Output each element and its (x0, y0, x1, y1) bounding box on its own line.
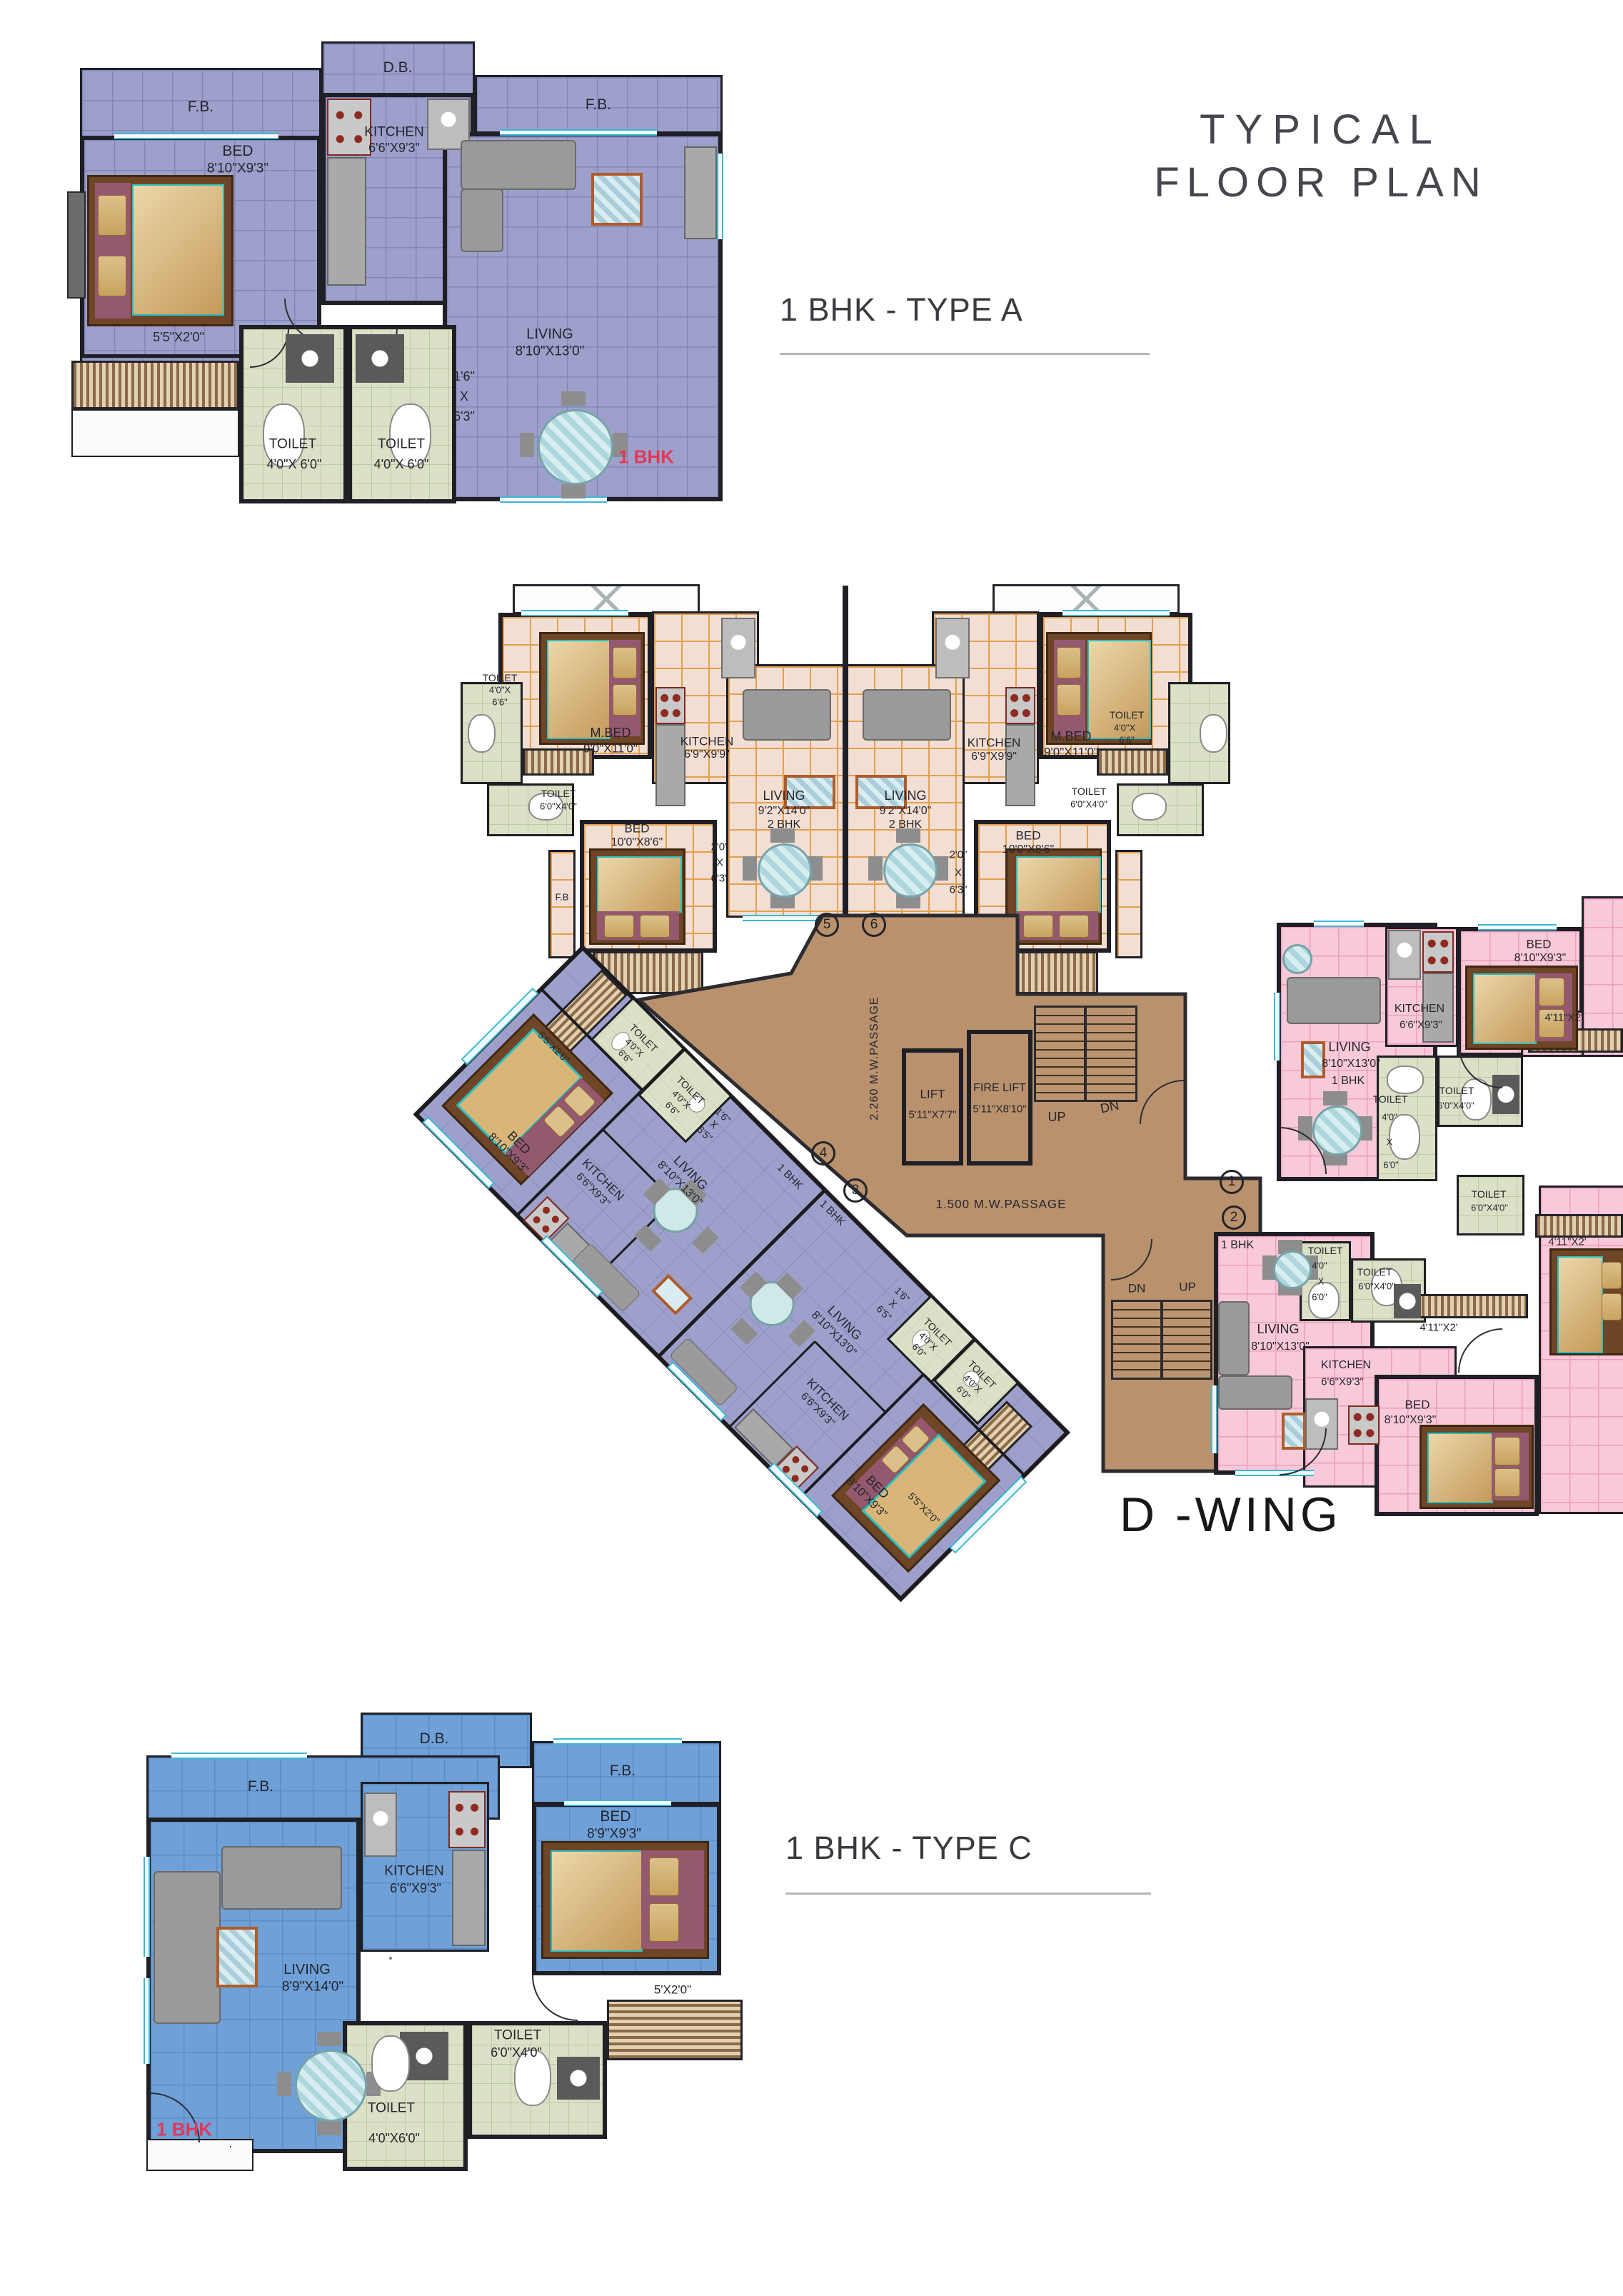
type-a-balcony-louver (71, 361, 239, 409)
bhk2r-mbed-furniture (1046, 632, 1152, 745)
bhk2l-stove (655, 687, 685, 724)
bhk2l-balc-dim2: 6'3" (711, 873, 729, 886)
type-a-wardrobe-dim: 5'5"X2'0" (153, 330, 204, 344)
bhk2l-toilet1-dim1: 4'0"X (489, 686, 511, 696)
type-a-living-top-window (500, 129, 657, 136)
bhk2r-dining-table (883, 843, 938, 898)
type-a-toilet2-label: TOILET (378, 436, 425, 451)
core-dn2-label: DN (1128, 1281, 1146, 1295)
type-c-stove (448, 1791, 486, 1848)
type-a-kitchen-counter (327, 157, 366, 286)
bhk2r-sofa (863, 689, 951, 741)
type-a-passage-dim2: 6'3" (453, 409, 475, 423)
bhk2r-mbed-window (1062, 610, 1170, 616)
pinkb-toilet1-dim2: 6'0" (1312, 1293, 1327, 1303)
pinkb-bed-pillow (1494, 1437, 1520, 1465)
type-c-fb-right-window (553, 1738, 682, 1745)
type-a-tv-unit (684, 146, 717, 239)
bhk2r-kitchen-dim: 6'9"X9'9" (971, 751, 1017, 763)
pinkb-balcony-louver (1407, 1294, 1528, 1318)
pinkb-stove (1348, 1405, 1380, 1445)
pinkb-left-window (1211, 1385, 1217, 1453)
pinkp-bed-mattress (1557, 1256, 1603, 1353)
type-a-bed-furniture (87, 175, 233, 326)
type-c-bed-mattress (551, 1850, 643, 1952)
type-a-bed-window (114, 133, 278, 139)
bhk2-divider-wall (843, 586, 848, 918)
pinkt-balc-dim: 4'11"X2' (1544, 1013, 1582, 1025)
core-circle-1-num: 1 (1228, 1174, 1236, 1190)
pinkp-balc-dim: 4'11"X2' (1548, 1237, 1586, 1249)
type-c-wardrobe-dim: 5'X2'0" (654, 1982, 691, 1996)
bhk2l-living-label: LIVING (763, 788, 805, 803)
type-c-underline (785, 1893, 1151, 1895)
type-a-kitchen-label: KITCHEN (364, 124, 423, 139)
wing-rotated-group: 5'5"X2'0" TOILET 4'0"X 6'6" TOILET 4'0"X… (411, 943, 1072, 1604)
type-a-dining-set (520, 391, 627, 498)
section-label-type-a: 1 BHK - TYPE A (780, 291, 1023, 329)
bhk2l-balc-dim1: 2'0" (711, 842, 729, 854)
bhk2r-living-dim: 9'2"X14'0" (880, 805, 932, 818)
type-a-bed-label: BED (222, 143, 253, 160)
type-a-mirror (591, 173, 643, 226)
type-a-toilet1-label: TOILET (269, 436, 316, 451)
type-a-db-label: D.B. (383, 59, 413, 76)
pinkt-living-label: LIVING (1328, 1040, 1370, 1054)
type-c-bed-furniture (541, 1841, 709, 1959)
bhk2r-bed-dim: 10'0"X8'6" (1003, 843, 1055, 856)
floor-plan-canvas: F.B. D.B. F.B. BED 8'10"X9'3" KITCHEN 6'… (0, 0, 1623, 2296)
pinkt-bed-mattress (1473, 973, 1537, 1044)
pinkt-bed-furniture (1465, 966, 1578, 1050)
core-lower-stairs-divider (1160, 1300, 1163, 1380)
bhk2l-sofa (743, 689, 831, 741)
title-line1: TYPICAL (1135, 106, 1507, 154)
type-a-bed-mattress (132, 184, 224, 316)
pinkt-bed-window (1478, 924, 1557, 931)
bhk2l-mbed-label: M.BED (590, 726, 630, 740)
type-a-fb-left-label: F.B. (188, 99, 213, 116)
type-c-dining-table (295, 2050, 367, 2122)
core-circle-2: 2 (1222, 1205, 1246, 1230)
bhk2l-dining-table (758, 843, 812, 898)
pinkt-toilet2-dim: 6'0"X4'0" (1437, 1101, 1474, 1112)
bhk2r-toilet2-dim: 6'0"X4'0" (1070, 800, 1107, 811)
pinkp-toilet-label: TOILET (1472, 1189, 1507, 1200)
type-a-sofa-single (461, 189, 503, 252)
bhk2r-sink-unit (935, 618, 970, 678)
core-up2-label: UP (1179, 1280, 1196, 1293)
bhk2r-toilet1-label: TOILET (1110, 710, 1145, 721)
bhk2r-kitchen-label: KITCHEN (968, 736, 1021, 749)
pinkt-sink-unit (1388, 930, 1421, 980)
type-a-bed-pillow (98, 195, 126, 236)
bhk2r-bed-label: BED (1016, 828, 1041, 842)
pinkb-kitchen-label: KITCHEN (1321, 1359, 1371, 1372)
pinkt-bed-dim: 8'10"X9'3" (1514, 952, 1567, 965)
pinkb-living-dim: 8'10"X13'0" (1251, 1340, 1310, 1353)
pinkt-dining-table (1312, 1106, 1362, 1155)
type-c-kitchen-dim: 6'6"X9'3" (390, 1881, 441, 1895)
bhk2r-toilet2-wc (1132, 793, 1167, 821)
type-c-toilet2-dim: 6'0"X4'0" (491, 2045, 542, 2060)
pinkt-toilet1-x: X (1387, 1138, 1393, 1148)
type-a-bed-dim: 8'10"X9'3" (207, 161, 268, 176)
type-c-balcony-louver (607, 2000, 743, 2060)
pinkb-sofa-vertical (1218, 1301, 1250, 1375)
type-c-toilet1-wc (371, 2035, 410, 2092)
bhk2l-toilet1-label: TOILET (483, 673, 518, 684)
bhk2r-balc-x: X (955, 868, 962, 880)
type-c-toilet1-dim: 4'0"X6'0" (368, 2131, 420, 2145)
pinkb-bed-pillow (1494, 1468, 1520, 1497)
type-a-passage-dim1: 1'6" (453, 369, 475, 383)
bhk2r-balc-dim2: 6'3" (950, 885, 968, 897)
type-c-balcony-floor (146, 2139, 253, 2171)
type-c-left-window1 (144, 1857, 150, 1957)
type-c-toilet2-label: TOILET (494, 2027, 541, 2042)
pinkt-living-type: 1 BHK (1332, 1075, 1365, 1088)
type-c-sink-unit (364, 1793, 397, 1857)
wing-caption: D -WING (1120, 1487, 1342, 1543)
type-a-balcony-floor (71, 409, 239, 457)
type-a-toilet1-dim: 4'0"X 6'0" (267, 457, 322, 471)
bhk2l-bed-dim: 10'0"X8'6" (611, 836, 663, 849)
bhk2l-kitchen-label: KITCHEN (680, 734, 734, 748)
bhk2r-toilet1-dim1: 4'0"X (1114, 723, 1135, 734)
pinkb-toilet2-basin (1394, 1284, 1421, 1318)
bhk2l-living-dim: 9'2"X14'0" (758, 805, 810, 818)
pinkb-bed-door-arc (1458, 1328, 1502, 1373)
bhk2r-balc-dim1: 2'0" (950, 850, 968, 862)
type-a-toilet1-basin (286, 334, 334, 383)
type-a-dining-table (538, 409, 613, 485)
bhk2r-bed-mattress (1016, 856, 1101, 913)
type-c-fb-window (171, 1753, 307, 1759)
type-c-bed-door-arc (532, 1975, 578, 2021)
type-a-passage-x: X (460, 389, 468, 403)
type-c-bed-dim: 8'9"X9'3" (587, 1826, 641, 1841)
bhk2l-kitchen-dim: 6'9"X9'9" (684, 748, 730, 761)
type-c-bed-label: BED (600, 1808, 630, 1825)
type-c-kitchen-label: KITCHEN (384, 1863, 443, 1878)
bhk2r-stove (1005, 687, 1035, 724)
type-c-living-dim: 8'9"X14'0" (282, 1979, 343, 1994)
bhk2r-dining-set (868, 828, 948, 908)
type-a-toilet2-dim: 4'0"X 6'0" (374, 457, 429, 471)
pinkb-living-label: LIVING (1257, 1322, 1299, 1336)
section-label-type-c: 1 BHK - TYPE C (785, 1830, 1032, 1867)
bhk2r-mbed-label: M.BED (1050, 729, 1091, 743)
pinkp-bed-pillow (1602, 1262, 1622, 1289)
diagonal-wing: 5'5"X2'0" TOILET 4'0"X 6'6" TOILET 4'0"X… (386, 907, 1100, 1664)
pinkb-bed-label: BED (1405, 1398, 1430, 1411)
pinkt-toilet1-dim2: 6'0" (1383, 1160, 1399, 1171)
pinkt-toilet1-basin (1387, 1066, 1424, 1094)
pinkt-side-table (1282, 944, 1312, 974)
bhk2l-mbed-dim: 9'0"X11'0" (583, 741, 638, 755)
pinkb-sofa-horizontal (1218, 1375, 1292, 1410)
bhk2l-dining-set (743, 828, 823, 908)
type-c-toilet2-basin (557, 2057, 600, 2100)
pinkb-toilet2-label: TOILET (1357, 1267, 1392, 1278)
type-c-bed-window (564, 1800, 671, 1806)
pinkt-bed-pillow (1539, 978, 1564, 1006)
pinkb-bed-dim: 8'10"X9'3" (1385, 1414, 1437, 1427)
type-c-kitchen-counter (452, 1850, 486, 1946)
type-a-living-label: LIVING (526, 326, 573, 342)
pinkt-toilet2-label: TOILET (1439, 1086, 1474, 1097)
bhk2l-sink-unit (721, 618, 755, 678)
bhk2l-toilet2-label: TOILET (541, 788, 576, 800)
bhk2r-toilet2-label: TOILET (1072, 786, 1107, 798)
type-a-underline (780, 353, 1150, 355)
type-c-fb-right-label: F.B. (610, 1763, 635, 1780)
bhk2l-mbed-pillow (613, 684, 637, 716)
type-c-dining-set (277, 2032, 381, 2135)
type-a-kitchen-dim: 6'6"X9'3" (368, 141, 420, 155)
pinkb-toilet1-x: X (1318, 1277, 1325, 1288)
pinkb-kitchen-dim: 6'6"X9'3" (1321, 1377, 1364, 1389)
pinkb-bottom-window (1235, 1470, 1314, 1476)
core-circle-1: 1 (1220, 1170, 1244, 1194)
bhk2l-bed-label: BED (625, 821, 650, 835)
bhk2l-mbed-mattress (547, 640, 610, 739)
bhk2l-bed-mattress (597, 856, 682, 913)
type-c-bed-pillow (649, 1903, 679, 1942)
pinkt-kitchen-dim: 6'6"X9'3" (1400, 1020, 1442, 1032)
pinkb-unit-tag: 1 BHK (1221, 1239, 1254, 1252)
bhk2r-living-label: LIVING (884, 788, 926, 803)
pinkt-bed-label: BED (1527, 937, 1552, 951)
bhk2l-toilet1-wc (468, 714, 496, 753)
bhk2r-toilet1-wc (1200, 714, 1227, 753)
bhk2l-toilet1-dim2: 6'6" (492, 698, 508, 708)
pinkb-dining-table (1273, 1250, 1312, 1289)
pinkb-toilet2-dim: 6'0"X4'0" (1358, 1282, 1395, 1293)
pinkb-toilet1-label: TOILET (1308, 1245, 1343, 1257)
pinkp-bed-furniture (1549, 1248, 1623, 1355)
pinkp-bed-pillow (1602, 1293, 1622, 1320)
type-a-bed-pillow (98, 256, 126, 296)
type-a-unit-tag: 1 BHK (618, 446, 674, 467)
type-c-spacer (389, 1957, 392, 1960)
bhk2l-fb-label: F.B (556, 893, 569, 903)
bhk2r-wardrobe-louver (1097, 748, 1168, 776)
bhk2r-mbed-dim: 9'0"X11'0" (1044, 745, 1098, 758)
type-a-sofa (461, 140, 576, 190)
bhk2r-toilet1-dim2: 6'6" (1119, 736, 1135, 746)
type-a-toilet2-basin (356, 334, 404, 383)
type-a-living-right-window (717, 154, 723, 239)
pinkt-toilet1-label: TOILET (1373, 1094, 1408, 1106)
type-c-unit-tag: 1 BHK (156, 2119, 212, 2140)
type-c-sofa-vertical (154, 1871, 221, 2024)
type-c-fb-left-label: F.B. (248, 1778, 273, 1795)
bhk2l-living-type: 2 BHK (768, 818, 800, 831)
type-c-sofa-horizontal (221, 1846, 342, 1910)
pinkt-left-window (1274, 993, 1280, 1061)
type-c-db-label: D.B. (420, 1730, 449, 1748)
type-c-living-label: LIVING (283, 1962, 331, 1977)
type-a-living-dim: 8'10"X13'0" (516, 344, 585, 359)
pinkt-toilet1-dim1: 4'0" (1382, 1113, 1397, 1123)
pinkt-kitchen-label: KITCHEN (1395, 1003, 1444, 1016)
title-line2: FLOOR PLAN (1121, 159, 1521, 206)
pinkb-toilet1-dim1: 4'0" (1312, 1261, 1327, 1272)
pinkb-bed-mattress (1427, 1433, 1493, 1503)
bhk2l-mbed-window (521, 610, 628, 616)
type-c-null (230, 2146, 231, 2147)
pinkt-living-dim: 8'10"X13'0" (1322, 1058, 1380, 1071)
bhk2l-balc-x: X (716, 858, 723, 870)
pinkp-toilet-dim: 6'0"X4'0" (1471, 1203, 1508, 1214)
bhk2l-toilet2-dim: 6'0"X4'0" (540, 802, 577, 813)
bhk2r-living-type: 2 BHK (889, 818, 922, 831)
bhk2r-mbed-pillow (1057, 647, 1081, 678)
pinkt-stove (1422, 931, 1454, 973)
pinkt-sofa (1287, 977, 1381, 1024)
type-c-toilet1-label: TOILET (368, 2100, 415, 2115)
bhk2l-mbed-pillow (613, 647, 637, 678)
pinkt-top-window (1314, 921, 1364, 927)
bhk2r-mbed-pillow (1057, 684, 1081, 716)
type-a-doorframe-block (67, 191, 86, 299)
pinkb-bed-furniture (1420, 1425, 1534, 1509)
type-c-left-window2 (144, 1978, 150, 2064)
pinkp-balcony-louver (1535, 1214, 1623, 1238)
core-circle-2-num: 2 (1230, 1210, 1238, 1225)
pinkb-balc-dim: 4'11"X2' (1420, 1323, 1457, 1335)
type-c-bed-pillow (649, 1858, 679, 1896)
type-c-mirror (216, 1927, 258, 1987)
type-a-fb-right-label: F.B. (586, 96, 611, 114)
